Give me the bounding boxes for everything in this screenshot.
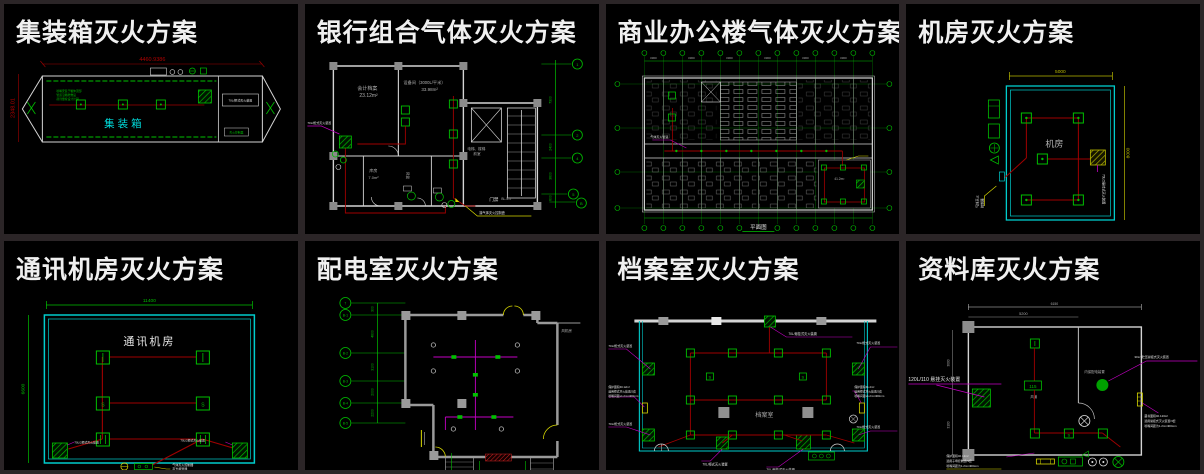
dim-top-label: 5000 <box>1055 69 1066 75</box>
dim-left-label: 6600 <box>20 383 26 394</box>
cabinet-label: 70L/2柜式灭火装置 <box>74 439 99 444</box>
label: 藏书面积40.123m² <box>1145 413 1169 418</box>
panel-title: 通讯机房灭火方案 <box>4 241 298 285</box>
riser-label: 115 <box>1030 383 1038 388</box>
axis-dim: 2000 <box>370 388 374 396</box>
label: 选用柜式灭火装置/2套 <box>608 389 636 393</box>
controller-label: 控制器 <box>980 198 985 208</box>
cabinet-hatch <box>232 443 247 458</box>
label: 70L/柜式灭火装置 <box>856 424 880 429</box>
svg-text:S: S <box>1068 432 1071 437</box>
room-label: 机房 <box>1046 138 1064 149</box>
hanging-extinguisher <box>1097 379 1109 391</box>
stairs-and-hatch <box>421 430 553 470</box>
controller-label: 灭火控制器 <box>229 131 243 135</box>
label: 保护面积40.12m² <box>608 385 630 389</box>
pipe-network <box>332 96 475 213</box>
controller-label: 接气体灭火控制盘 <box>479 210 505 215</box>
panel-office-plan: 商业办公楼气体灭火方案 <box>606 4 900 234</box>
pipe-and-nozzles: 70L/2悬挂式灭火装置 <box>1005 113 1107 205</box>
pipe-network <box>431 340 519 431</box>
tick: 3300 <box>802 56 809 60</box>
lobby-label: 电梯、楼梯 <box>467 146 485 151</box>
panel-title: 集装箱灭火方案 <box>4 4 298 48</box>
room-area: 33.98m² <box>421 87 438 92</box>
panel-power-room-plan: 配电室灭火方案 7 B-1 B-2 B-3 B-4 B-5 300 <box>305 241 599 471</box>
panel-archive-plan: 档案室灭火方案 <box>606 241 900 471</box>
label: 喷嘴间距≤1.2m×400mm <box>854 394 885 398</box>
panel-data-library-plan: 资料库灭火方案 6150 5200 3000 3100 <box>906 241 1200 471</box>
right-compartment: 70L/柜式灭火装置 灭火控制器 <box>222 94 258 136</box>
axis-label: B <box>580 201 583 206</box>
dim-label: 5200 <box>1019 312 1027 316</box>
office-drawing: 3300 3300 3300 3300 3300 3300 <box>606 48 900 233</box>
axis-label: 1 <box>576 62 579 67</box>
dim-label: 3100 <box>947 421 951 428</box>
archive-drawing: 档案室 S S <box>606 285 900 470</box>
label: 70L/柜式灭火装置 <box>608 421 632 426</box>
axis-grid: 1 2 4 5 B 7300 2400 3600 600 <box>541 59 586 208</box>
comm-room-drawing: 11400 6600 通讯机房 <box>4 285 298 470</box>
doors <box>435 306 557 457</box>
label: 选用悬挂式灭火装置/3套 <box>1145 418 1176 423</box>
axis-dim: 4600 <box>370 330 374 338</box>
device-label: 70L/柜式灭火装置 <box>228 98 252 103</box>
axis-dim: 3600 <box>548 172 552 180</box>
tick: 3300 <box>726 56 733 60</box>
panel-comm-room-plan: 通讯机房灭火方案 11400 6600 通讯机房 <box>4 241 298 471</box>
svg-text:S: S <box>708 374 711 379</box>
panel-title: 商业办公楼气体灭火方案 <box>606 4 900 48</box>
note-line: 药剂量按设计计算 <box>56 97 79 101</box>
controller-label: 声光报警器 <box>172 466 187 470</box>
pipe-and-nozzles: S S <box>658 327 857 447</box>
lobby-label: 前室 <box>473 151 481 156</box>
cabinet-label: 70L/柜式灭火装置 <box>307 120 331 125</box>
main-label: 120L/110 悬挂灭火装置 <box>909 376 961 383</box>
data-library-drawing: 6150 5200 3000 3100 120L/110 悬挂灭 <box>906 285 1200 470</box>
panel-machine-room-plan: 机房灭火方案 5000 8000 机房 <box>906 4 1200 234</box>
axis-label: B-1 <box>342 313 347 317</box>
label: 70L/悬挂式灭火装置 <box>766 467 795 470</box>
panel-title: 银行组合气体灭火方案 <box>305 4 599 48</box>
device-label: 70L/2悬挂式灭火装置 <box>1102 174 1107 204</box>
axis-label: B-4 <box>342 401 347 405</box>
cabinet-label: 70L/2柜式灭火装置 <box>180 437 205 442</box>
axis-label: 7 <box>344 301 346 305</box>
label: 选用子母控制盘/3套 <box>947 458 973 463</box>
controller-label: 气体灭火 <box>975 194 980 208</box>
elevator <box>471 108 501 142</box>
axis-label: 2 <box>576 133 579 138</box>
power-room-drawing: 7 B-1 B-2 B-3 B-4 B-5 300 4600 3100 2000… <box>305 285 599 470</box>
axis-dim: 2200 <box>370 409 374 417</box>
dim-label: 3000 <box>947 359 951 366</box>
label: 选用柜式灭火装置/2套 <box>854 389 882 393</box>
bank-drawing: BL-5-1 会计档案 23.12m² 设备间（3000L/平米） 33.98m… <box>305 48 599 233</box>
cabinet-hatch <box>198 90 211 103</box>
green-note: 喷嘴安装于箱体顶部 管道沿箱壁敷设 药剂量按设计计算 <box>56 89 81 101</box>
axis-label: 4 <box>576 156 579 161</box>
bottom-devices <box>654 444 844 460</box>
stair-label: BL-5-1 <box>501 197 511 201</box>
label: 70L/柜式灭火装置 <box>702 461 727 466</box>
room-area: 23.12m² <box>359 93 378 99</box>
label: 保护面积41.2m² <box>854 385 874 389</box>
panel-title: 配电室灭火方案 <box>305 241 599 285</box>
room-name: 设备间（3000L/平米） <box>403 79 445 86</box>
room-area: 41.2m² <box>834 177 844 181</box>
plan-label: 平面图 <box>750 223 767 231</box>
label: 保护面积40.12m² <box>947 453 969 458</box>
panel-title: 机房灭火方案 <box>906 4 1200 48</box>
cabinet-hatch <box>52 443 67 458</box>
cabinet-hatch <box>1091 150 1106 165</box>
cabinet-hatch <box>856 180 864 188</box>
room-name: 库房 <box>369 167 377 173</box>
svg-text:S: S <box>101 402 105 408</box>
tick: 3300 <box>764 56 771 60</box>
axis-dim: 300 <box>370 306 374 312</box>
tick: 3300 <box>650 56 657 60</box>
dim-top-label: 4460.9386 <box>139 57 165 63</box>
cabinet-hatch <box>339 136 351 148</box>
room-label: 集装箱 <box>104 117 145 130</box>
room-name: 会计档案 <box>357 85 377 92</box>
axis-label: B-5 <box>342 421 347 425</box>
dim-right-label: 8000 <box>1126 147 1132 158</box>
plan-caption: 平面图 <box>742 223 774 232</box>
label: 喷嘴间距为1.2m×400mm <box>1145 423 1178 428</box>
panel-container-plan: 集装箱灭火方案 4460.9386 2348.01 <box>4 4 298 234</box>
dim-top-label: 11400 <box>143 298 156 304</box>
duct-fans <box>403 186 443 201</box>
walls <box>405 315 580 457</box>
red-hatch <box>485 454 511 461</box>
tick: 3300 <box>688 56 695 60</box>
tick: 3300 <box>840 56 847 60</box>
stairs: BL-5-1 <box>501 108 535 201</box>
fan-room-label: 风机房 <box>561 328 572 333</box>
panel-bank-plan: 银行组合气体灭火方案 <box>305 4 599 234</box>
left-axis: 7 B-1 B-2 B-3 B-4 B-5 300 4600 3100 2000… <box>340 297 406 428</box>
columns <box>401 311 540 460</box>
axis-label: B-2 <box>342 351 347 355</box>
box-label: 内保配电装置 <box>1085 369 1106 374</box>
bottom-devices <box>1037 451 1125 468</box>
label: 喷嘴间距为1.2m×400mm <box>947 463 980 468</box>
pipe-and-nozzles: 115 风道 S <box>1025 339 1121 447</box>
container-drawing: 4460.9386 2348.01 <box>4 48 298 233</box>
dimension-lines: 5000 8000 <box>1010 69 1132 220</box>
label: 70L/柜式灭火装置 <box>856 340 880 345</box>
svg-text:S: S <box>201 402 205 408</box>
drawing-collage: 集装箱灭火方案 4460.9386 2348.01 <box>0 0 1204 474</box>
label: 喷嘴间距≤1.2m×400mm <box>608 394 639 398</box>
leader-labels: 70L/悬挂式灭火装置 70L/柜式灭火装置 保护面积40.12m² 选用柜式灭… <box>608 327 897 470</box>
building <box>642 76 874 212</box>
duct-label: 风管 <box>405 172 410 179</box>
cabinet-hatches <box>642 316 864 449</box>
pipe-label: 气体灭火管道 <box>650 134 668 139</box>
room-label: 通讯机房 <box>123 334 175 348</box>
axis-label: 5 <box>572 192 575 197</box>
machine-room-drawing: 5000 8000 机房 <box>906 48 1200 233</box>
label: 70L/柜式灭火装置 <box>608 343 632 348</box>
dimension-lines: 11400 6600 <box>20 298 252 463</box>
room-labels: 会计档案 23.12m² 设备间（3000L/平米） 33.98m² 库房 7.… <box>357 79 498 203</box>
panel-title: 档案室灭火方案 <box>606 241 900 285</box>
right-device: 藏书面积40.123m² 选用悬挂式灭火装置/3套 喷嘴间距为1.2m×400m… <box>1138 393 1178 428</box>
dim-left-label: 2348.01 <box>10 98 16 118</box>
cabinet-hatch <box>973 389 991 407</box>
hang-devices: 120L/110 悬挂灭火装置 内保配电装置 30L/1贮压悬挂式灭火装置 <box>909 354 1198 407</box>
axis-dim: 600 <box>548 195 552 201</box>
room-area: 7.0m² <box>368 175 379 180</box>
axis-dim: 2400 <box>548 143 552 151</box>
tick-labels: 3300 3300 3300 3300 3300 3300 <box>650 56 847 60</box>
axis-dim: 7300 <box>548 96 552 104</box>
cabinets: 70L/2柜式灭火装置 70L/2柜式灭火装置 <box>52 437 247 458</box>
hang-label: 30L/1贮压悬挂式灭火装置 <box>1135 354 1170 359</box>
dim-label: 6150 <box>1051 302 1059 306</box>
room-label: 档案室 <box>755 411 773 419</box>
control-devices: 气体灭火 控制器 <box>975 100 1005 208</box>
panel-title: 资料库灭火方案 <box>906 241 1200 285</box>
roof-devices <box>150 68 206 75</box>
door-label: 门禁 <box>489 196 498 203</box>
label: 70L/悬挂式灭火装置 <box>788 331 817 336</box>
dimension-lines: 6150 5200 3000 3100 <box>947 302 1142 455</box>
axis-label: B-3 <box>342 379 347 383</box>
svg-text:S: S <box>801 374 804 379</box>
pipe-and-nozzles: S S <box>68 351 236 465</box>
axis-dim: 3100 <box>370 363 374 371</box>
